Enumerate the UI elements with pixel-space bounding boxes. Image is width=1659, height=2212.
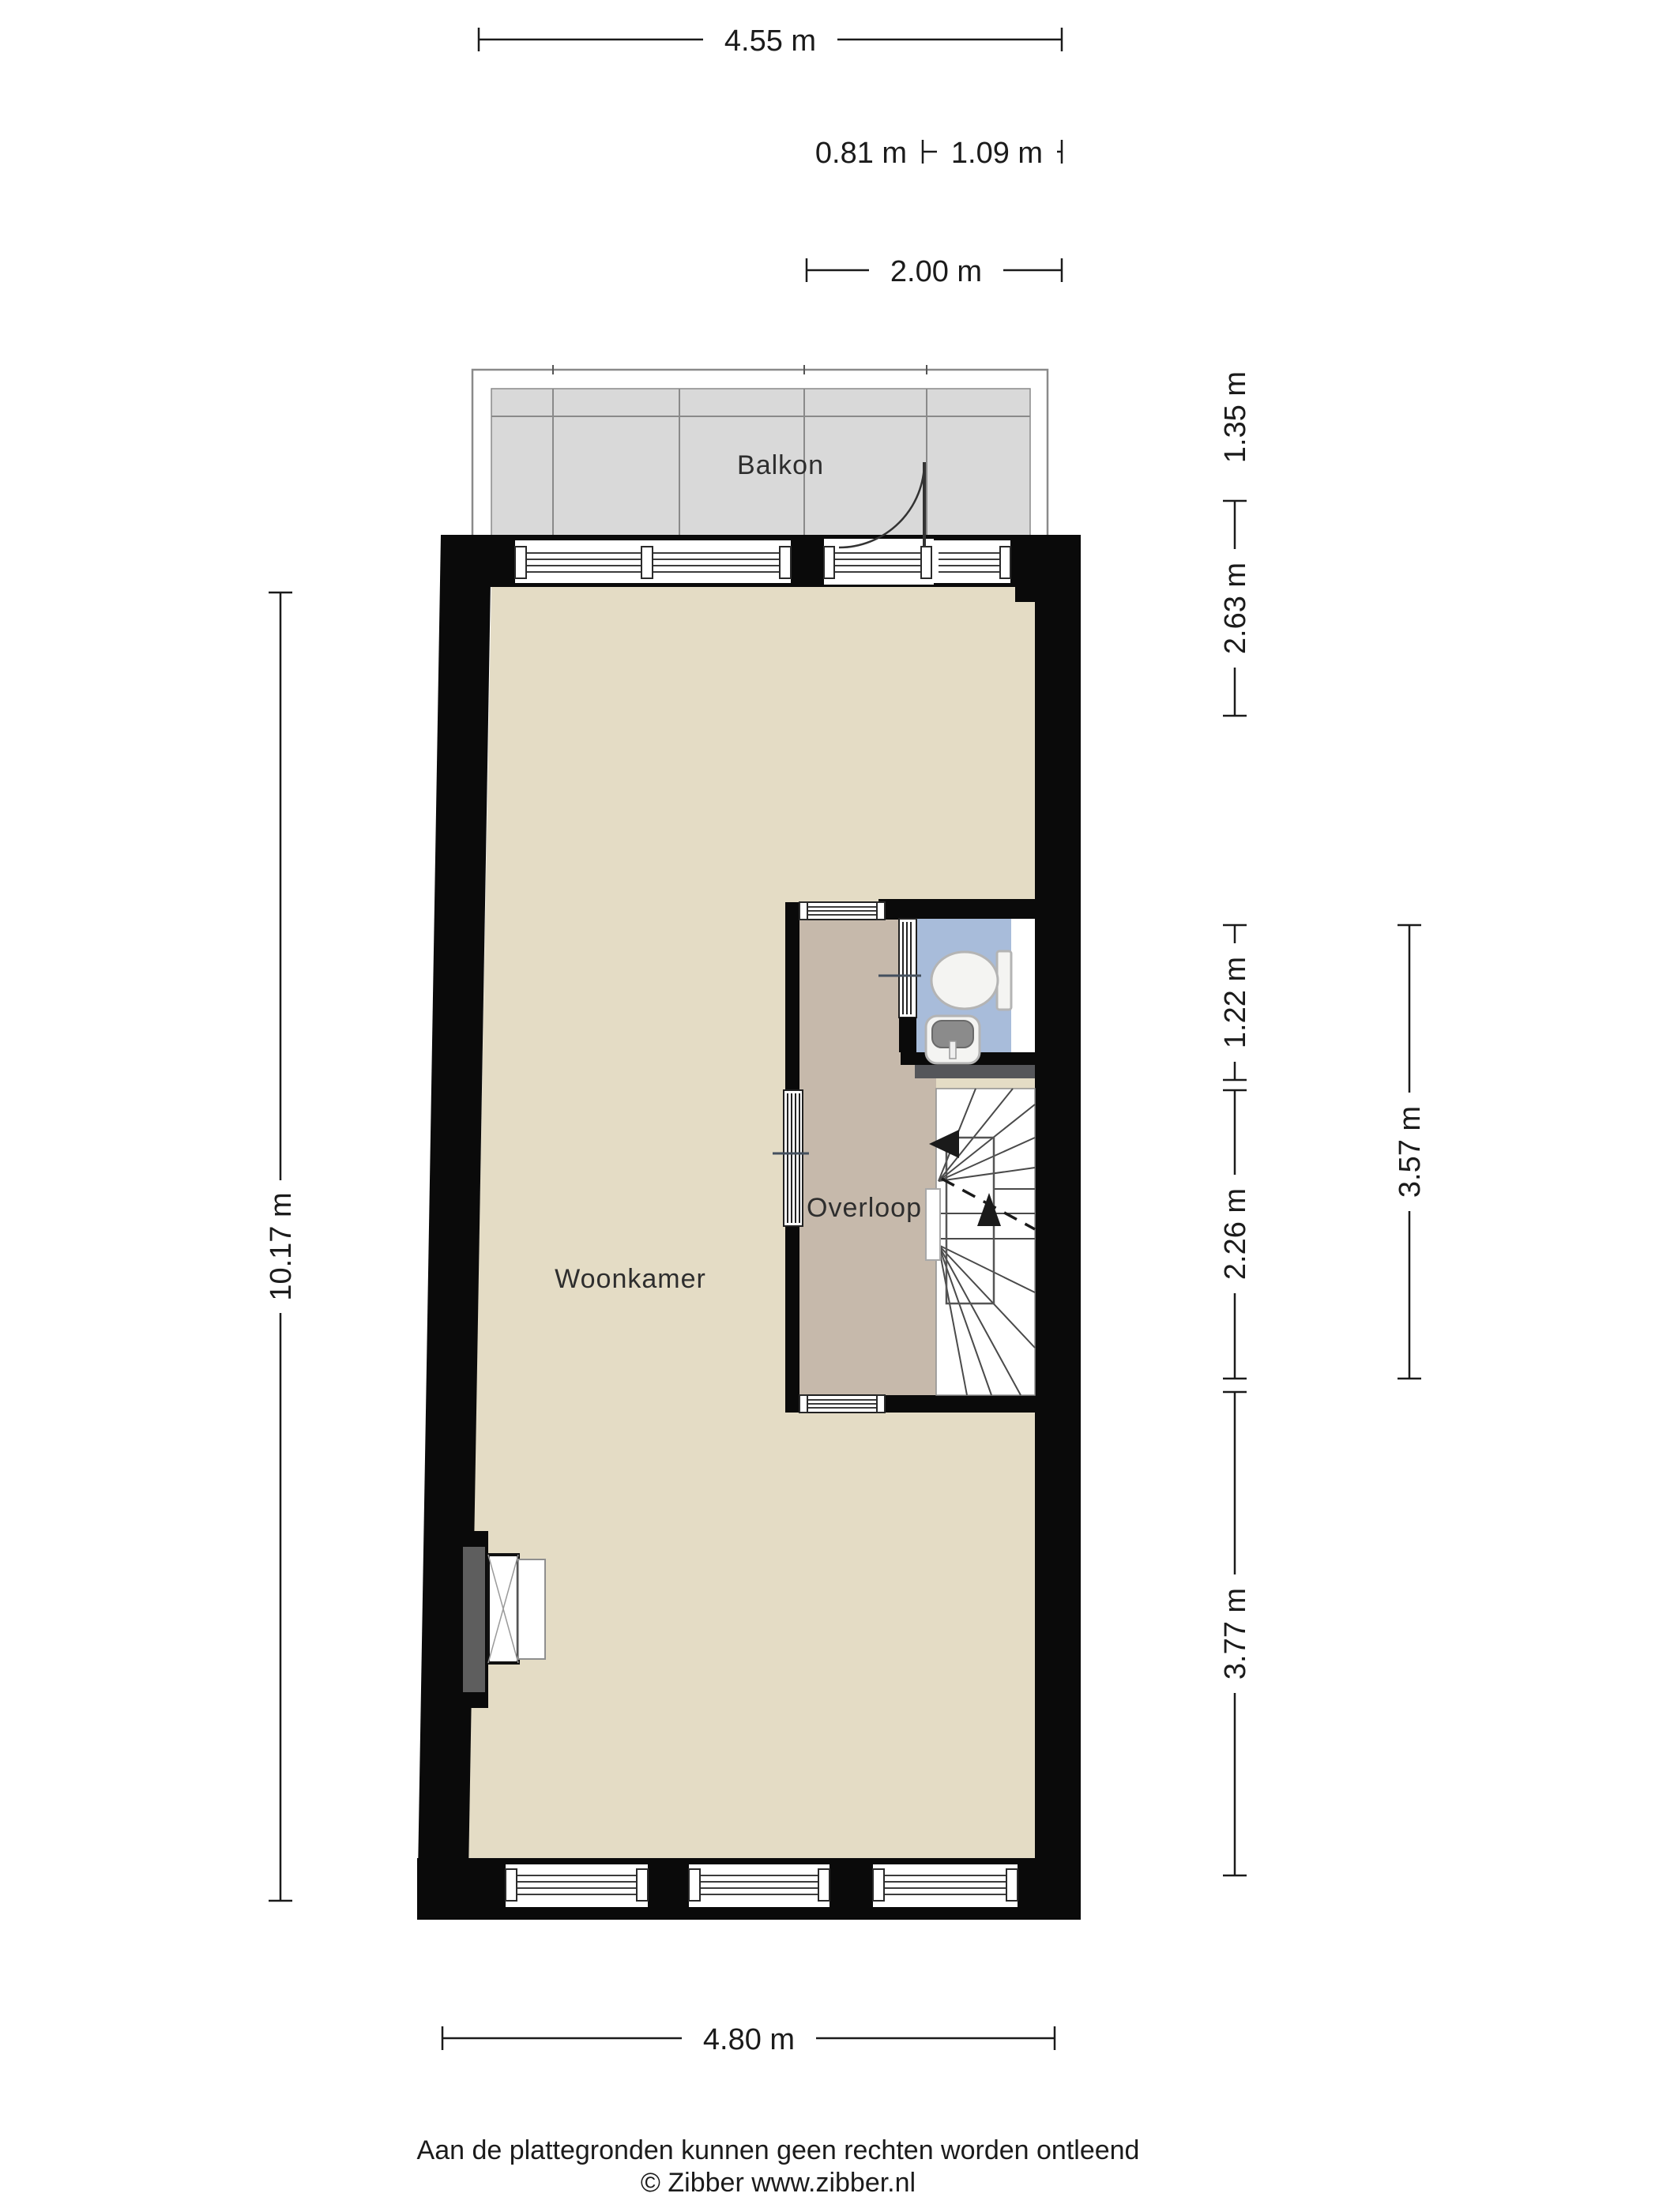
footer-disclaimer: Aan de plattegronden kunnen geen rechten… xyxy=(417,2135,1140,2165)
balcony-door-opening xyxy=(824,539,934,585)
interior-block xyxy=(773,899,1081,1413)
landing-south-window xyxy=(799,1395,885,1413)
floorplan-drawing: Balkon Woonkamer Overloop 4.55 m 0.81 m … xyxy=(0,0,1659,2212)
dimension-label: 1.09 m xyxy=(951,137,1043,170)
floorplan-page: Balkon Woonkamer Overloop 4.55 m 0.81 m … xyxy=(0,0,1659,2212)
toilet-icon xyxy=(931,951,1011,1010)
dimension-balcony-width: 2.00 m xyxy=(807,251,1062,289)
landing-label: Overloop xyxy=(807,1193,922,1223)
stair-door-opening xyxy=(926,1189,940,1260)
window xyxy=(873,1864,1018,1907)
dimension-stairs-height: 2.26 m xyxy=(1215,1090,1255,1379)
window xyxy=(515,540,791,583)
dimension-label: 2.26 m xyxy=(1219,1188,1252,1280)
living-room-label: Woonkamer xyxy=(555,1264,706,1294)
window xyxy=(506,1864,648,1907)
chimney-hearth xyxy=(518,1559,545,1659)
toilet-room xyxy=(878,919,1035,1078)
dimension-label: 0.81 m xyxy=(815,137,907,170)
dimension-label: 4.80 m xyxy=(703,2023,795,2056)
dimension-label: 10.17 m xyxy=(265,1192,298,1300)
dimension-living-top-height: 2.63 m xyxy=(1215,501,1255,716)
sink-icon xyxy=(926,1016,980,1063)
dimension-label: 4.55 m xyxy=(724,24,816,58)
dimension-label: 2.00 m xyxy=(890,255,982,288)
landing-north-window xyxy=(799,902,885,920)
balcony-label: Balkon xyxy=(737,450,824,480)
bottom-wall-windows xyxy=(506,1864,1018,1907)
dimension-balcony-depth: 1.35 m xyxy=(1215,359,1255,475)
dimension-top-width: 4.55 m xyxy=(479,21,1062,58)
wall-right xyxy=(1035,535,1081,1920)
chimney-shaft-icon xyxy=(488,1555,518,1663)
chimney-flue xyxy=(463,1547,485,1692)
dimension-label: 3.57 m xyxy=(1394,1106,1427,1198)
dimension-label: 1.22 m xyxy=(1219,957,1252,1048)
dimension-living-bottom-height: 3.77 m xyxy=(1215,1392,1255,1875)
faucet-icon xyxy=(950,1041,956,1059)
window xyxy=(689,1864,829,1907)
dimension-toilet-height: 1.22 m xyxy=(1215,925,1255,1080)
dimension-label: 1.35 m xyxy=(1219,371,1252,463)
dimension-left-height: 10.17 m xyxy=(261,592,300,1901)
window xyxy=(934,540,1010,583)
dimension-bottom-width: 4.80 m xyxy=(442,2019,1055,2057)
dimension-block-height: 3.57 m xyxy=(1390,925,1429,1379)
top-wall-windows xyxy=(515,539,1010,585)
toilet-east-niche xyxy=(1011,919,1035,1052)
dimension-label: 3.77 m xyxy=(1219,1588,1252,1680)
wall-toilet-north xyxy=(878,899,1081,920)
dimension-balcony-door-width: 1.09 m xyxy=(923,133,1062,171)
dimension-label: 2.63 m xyxy=(1219,562,1252,654)
footer-copyright: © Zibber www.zibber.nl xyxy=(641,2168,916,2198)
wall-toilet-west xyxy=(899,1018,916,1052)
toilet-step-bar xyxy=(915,1065,1035,1078)
stairs xyxy=(926,1089,1035,1395)
dimension-balcony-door-offset: 0.81 m xyxy=(815,137,907,170)
